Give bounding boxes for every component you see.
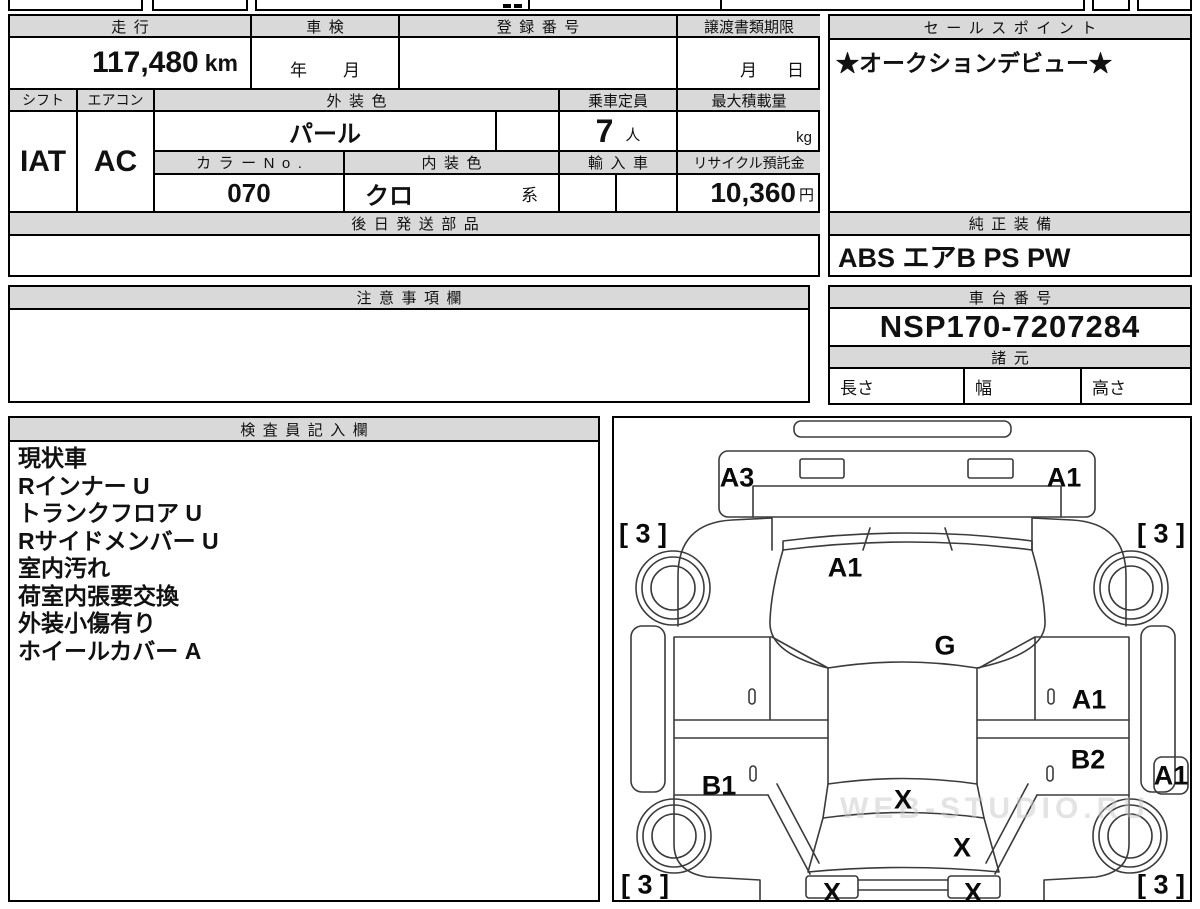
notes-header: 注意事項欄 xyxy=(10,287,808,310)
diagram-label: B1 xyxy=(702,771,737,802)
capacity-unit: 人 xyxy=(625,124,640,150)
diagram-label: G xyxy=(934,631,955,662)
watermark: WEB-STUDIO.RU xyxy=(840,792,1150,826)
interior-color-label: 内装色 xyxy=(414,152,489,173)
registration-header: 登録番号 xyxy=(400,16,678,38)
top-row-fragment-cell xyxy=(8,0,143,11)
sales-point-panel: セールスポイント ★オークションデビュー★ 純正装備 ABS エアB PS PW xyxy=(828,14,1192,277)
diagram-labels: WEB-STUDIO.RU A3A1[ 3 ][ 3 ]A1GA1B2A1B1X… xyxy=(612,416,1192,900)
diagram-label: X xyxy=(823,878,841,909)
interior-color-value-cell: クロ 系 xyxy=(345,175,560,213)
aircon-value: AC xyxy=(94,145,137,179)
inspection-value-cell: 年 月 xyxy=(252,38,400,90)
inspector-box: 検査員記入欄 現状車Rインナー Uトランクフロア URサイドメンバー U室内汚れ… xyxy=(8,416,600,902)
top-row-fragment-cell xyxy=(1137,0,1192,11)
recycle-deposit-value: 10,360 xyxy=(710,177,796,209)
capacity-value-cell: 7 人 xyxy=(560,112,678,152)
notes-label: 注意事項欄 xyxy=(349,287,469,308)
capacity-value: 7 xyxy=(596,113,614,150)
top-row-fragment-cell xyxy=(152,0,248,11)
shift-value: IAT xyxy=(20,145,66,179)
chassis-header: 車台番号 xyxy=(830,287,1190,309)
spec-height-label: 高さ xyxy=(1092,374,1126,399)
equipment-value-cell: ABS エアB PS PW xyxy=(830,236,1190,275)
top-row-fragment-cell xyxy=(1092,0,1130,11)
transfer-docs-header: 譲渡書類期限 xyxy=(678,16,820,38)
auction-sheet: { "colors": {"header_bg": "#d9d9d9", "bo… xyxy=(0,0,1200,900)
diagram-label: A1 xyxy=(828,553,863,584)
exterior-color-value: パール xyxy=(289,114,361,149)
color-no-header: カラーNo. xyxy=(155,152,345,175)
exterior-color-sub-cell xyxy=(497,112,560,152)
diagram-label: B2 xyxy=(1071,745,1106,776)
chassis-panel: 車台番号 NSP170-7207284 諸元 長さ 幅 高さ xyxy=(828,285,1192,405)
transfer-docs-label: 譲渡書類期限 xyxy=(704,16,794,37)
specs-label: 諸元 xyxy=(984,347,1037,368)
sales-point-header: セールスポイント xyxy=(830,16,1190,40)
inspector-note-line: Rサイドメンバー U xyxy=(18,528,590,556)
capacity-header: 乗車定員 xyxy=(560,90,678,112)
spec-length-cell: 長さ xyxy=(830,369,965,403)
chassis-value: NSP170-7207284 xyxy=(880,309,1140,345)
inspector-note-line: 室内汚れ xyxy=(18,555,590,583)
inspector-note-line: 荷室内張要交換 xyxy=(18,583,590,611)
equipment-label: 純正装備 xyxy=(961,213,1059,234)
shift-header: シフト xyxy=(10,90,78,112)
max-load-label: 最大積載量 xyxy=(711,90,786,111)
diagram-label: X xyxy=(894,785,912,816)
cutoff-glyph-mark xyxy=(503,4,511,8)
recycle-deposit-label: リサイクル預託金 xyxy=(693,153,804,173)
inspector-notes: 現状車Rインナー Uトランクフロア URサイドメンバー U室内汚れ荷室内張要交換… xyxy=(10,442,598,900)
inspector-note-line: 外装小傷有り xyxy=(18,610,590,638)
max-load-value-cell: kg xyxy=(678,112,820,152)
mileage-unit: km xyxy=(205,50,238,77)
import-car-cell-a xyxy=(560,175,617,213)
top-row-fragment-cell xyxy=(255,0,1085,11)
capacity-label: 乗車定員 xyxy=(588,90,648,111)
later-parts-value-cell xyxy=(10,236,820,275)
inspector-header: 検査員記入欄 xyxy=(10,418,598,442)
aircon-header: エアコン xyxy=(78,90,155,112)
aircon-value-cell: AC xyxy=(78,112,155,213)
exterior-color-label: 外装色 xyxy=(319,90,394,111)
interior-color-suffix: 系 xyxy=(521,181,538,206)
registration-label: 登録番号 xyxy=(489,16,587,37)
spec-height-cell: 高さ xyxy=(1082,369,1190,403)
equipment-value: ABS エアB PS PW xyxy=(838,236,1071,275)
inspection-label: 車検 xyxy=(299,16,352,37)
diagram-label: [ 3 ] xyxy=(619,519,667,550)
interior-color-value: クロ xyxy=(365,176,413,211)
inspection-year-mark: 年 xyxy=(290,56,307,81)
max-load-unit: kg xyxy=(796,129,812,146)
spec-width-cell: 幅 xyxy=(965,369,1082,403)
spec-width-label: 幅 xyxy=(975,374,992,399)
interior-color-header: 内装色 xyxy=(345,152,560,175)
inspector-note-line: Rインナー U xyxy=(18,473,590,501)
fragment-divider xyxy=(720,0,722,9)
chassis-value-cell: NSP170-7207284 xyxy=(830,309,1190,347)
color-no-value: 070 xyxy=(227,178,270,209)
import-car-header: 輸入車 xyxy=(560,152,678,175)
registration-value-cell xyxy=(400,38,678,90)
sales-point-value-cell: ★オークションデビュー★ xyxy=(830,40,1190,213)
exterior-color-header: 外装色 xyxy=(155,90,560,112)
fragment-divider xyxy=(528,0,530,9)
color-no-value-cell: 070 xyxy=(155,175,345,213)
diagram-label: A1 xyxy=(1154,761,1189,792)
diagram-label: A1 xyxy=(1047,463,1082,494)
aircon-label: エアコン xyxy=(88,90,144,110)
spec-length-label: 長さ xyxy=(840,374,874,399)
shift-value-cell: IAT xyxy=(10,112,78,213)
import-car-label: 輸入車 xyxy=(580,152,655,173)
import-car-cell-b xyxy=(617,175,678,213)
cutoff-glyph-mark xyxy=(514,4,522,8)
inspection-header: 車検 xyxy=(252,16,400,38)
mileage-header: 走行 xyxy=(10,16,252,38)
specs-header: 諸元 xyxy=(830,347,1190,369)
diagram-label: A1 xyxy=(1072,685,1107,716)
sales-point-label: セールスポイント xyxy=(916,17,1104,38)
inspector-note-line: トランクフロア U xyxy=(18,500,590,528)
inspector-note-line: ホイールカバー A xyxy=(18,638,590,666)
mileage-value: 117,480 xyxy=(92,46,199,80)
diagram-label: [ 3 ] xyxy=(1137,519,1185,550)
later-parts-label: 後日発送部品 xyxy=(344,213,487,234)
inspector-note-line: 現状車 xyxy=(18,445,590,473)
notes-box: 注意事項欄 xyxy=(8,285,810,403)
recycle-deposit-header: リサイクル預託金 xyxy=(678,152,820,175)
transfer-month-mark: 月 xyxy=(740,56,757,81)
diagram-box: WEB-STUDIO.RU A3A1[ 3 ][ 3 ]A1GA1B2A1B1X… xyxy=(612,416,1192,902)
recycle-deposit-value-cell: 10,360 円 xyxy=(678,175,820,213)
color-no-label: カラーNo. xyxy=(189,152,310,173)
inspection-month-mark: 月 xyxy=(343,56,360,81)
chassis-label: 車台番号 xyxy=(961,287,1059,308)
diagram-label: X xyxy=(953,833,971,864)
recycle-deposit-unit: 円 xyxy=(799,184,814,211)
later-parts-header: 後日発送部品 xyxy=(10,213,820,236)
sales-point-value: ★オークションデビュー★ xyxy=(836,44,1112,78)
equipment-header: 純正装備 xyxy=(830,213,1190,236)
max-load-header: 最大積載量 xyxy=(678,90,820,112)
transfer-docs-value-cell: 月 日 xyxy=(678,38,820,90)
diagram-label: X xyxy=(964,878,982,909)
diagram-label: [ 3 ] xyxy=(621,870,669,901)
inspector-label: 検査員記入欄 xyxy=(233,419,376,440)
shift-label: シフト xyxy=(22,90,64,110)
vehicle-info-table: 走行 車検 登録番号 譲渡書類期限 117,480 km 年 月 月 日 シフト… xyxy=(8,14,820,277)
mileage-value-cell: 117,480 km xyxy=(10,38,252,90)
diagram-label: [ 3 ] xyxy=(1137,870,1185,901)
notes-value-cell xyxy=(10,310,808,401)
mileage-label: 走行 xyxy=(104,16,157,37)
exterior-color-value-cell: パール xyxy=(155,112,497,152)
diagram-label: A3 xyxy=(720,463,755,494)
transfer-day-mark: 日 xyxy=(787,56,804,81)
